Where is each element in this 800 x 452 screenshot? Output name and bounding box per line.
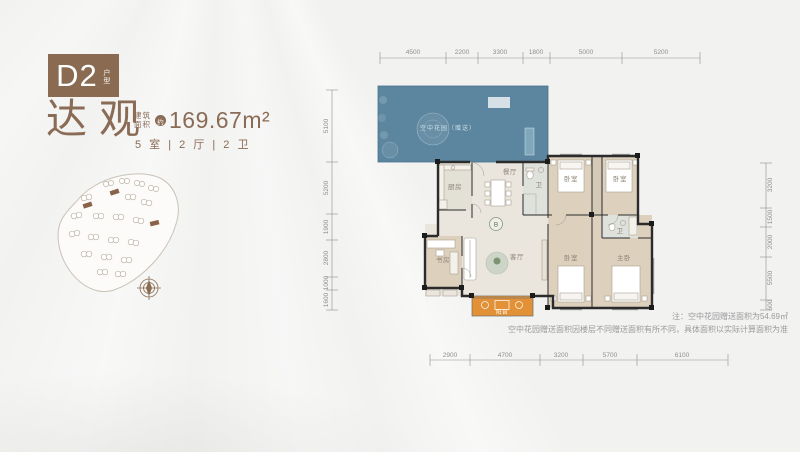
svg-text:2800: 2800 xyxy=(323,250,330,265)
svg-text:2200: 2200 xyxy=(455,49,470,56)
svg-text:5100: 5100 xyxy=(323,118,330,133)
svg-text:1000: 1000 xyxy=(323,275,330,290)
bedroom3-label: 卧室 xyxy=(564,253,578,262)
note-line2: 空中花园赠送面积因楼层不同赠送面积有所不同，具体面积以实际计算面积为准 xyxy=(508,324,788,337)
svg-text:3300: 3300 xyxy=(493,49,508,56)
bedroom1-label: 卧室 xyxy=(564,174,578,183)
unit-code: D2 xyxy=(56,60,98,91)
approx-mark: 约 xyxy=(155,115,166,126)
site-plan-map xyxy=(44,160,212,322)
svg-text:3200: 3200 xyxy=(767,177,774,192)
svg-text:2000: 2000 xyxy=(767,234,774,249)
compass-icon xyxy=(137,276,161,300)
notes: 注：空中花园赠送面积为54.69㎡ 空中花园赠送面积因楼层不同赠送面积有所不同，… xyxy=(508,311,788,337)
study-label: 书房 xyxy=(436,255,450,264)
core-marker: B xyxy=(490,218,503,231)
svg-text:2900: 2900 xyxy=(443,352,458,359)
svg-text:4700: 4700 xyxy=(498,352,513,359)
area-value: 169.67m² xyxy=(169,107,270,134)
bedroom2-label: 卧室 xyxy=(613,174,627,183)
bath-label: 卫 xyxy=(536,181,543,189)
kitchen-label: 厨房 xyxy=(448,182,462,191)
svg-text:1500: 1500 xyxy=(767,209,774,224)
svg-text:6100: 6100 xyxy=(675,352,690,359)
balcony-label: 阳台 xyxy=(496,308,508,316)
svg-text:3200: 3200 xyxy=(554,352,569,359)
svg-text:B: B xyxy=(494,222,498,229)
svg-text:5200: 5200 xyxy=(654,49,669,56)
dining-label: 餐厅 xyxy=(503,167,517,176)
svg-text:5700: 5700 xyxy=(603,352,618,359)
svg-text:1900: 1900 xyxy=(323,219,330,234)
terrace-label: 空中花园（赠送） xyxy=(420,124,476,132)
floorplan-poster: D2 户型 达观 建筑 面积 约 169.67m² 5 室 | 2 厅 | 2 … xyxy=(0,0,800,452)
note-line1: 注：空中花园赠送面积为54.69㎡ xyxy=(508,311,788,324)
area-label: 建筑 面积 xyxy=(134,112,151,129)
svg-text:5200: 5200 xyxy=(323,180,330,195)
master-bath-label: 卫 xyxy=(617,227,624,235)
svg-text:5000: 5000 xyxy=(579,49,594,56)
svg-text:4500: 4500 xyxy=(406,49,421,56)
sky-garden: 空中花园（赠送） xyxy=(378,86,548,162)
unit-type-label: 户型 xyxy=(101,69,111,85)
master-label: 主卧 xyxy=(617,253,631,262)
svg-text:1800: 1800 xyxy=(529,49,544,56)
svg-text:1600: 1600 xyxy=(323,292,330,307)
living-label: 客厅 xyxy=(510,252,524,261)
svg-text:600: 600 xyxy=(767,299,774,310)
room-count: 5 室 | 2 厅 | 2 卫 xyxy=(135,136,251,152)
svg-text:5500: 5500 xyxy=(767,270,774,285)
unit-badge: D2 户型 xyxy=(48,54,119,97)
area-row: 建筑 面积 约 169.67m² xyxy=(134,107,270,134)
